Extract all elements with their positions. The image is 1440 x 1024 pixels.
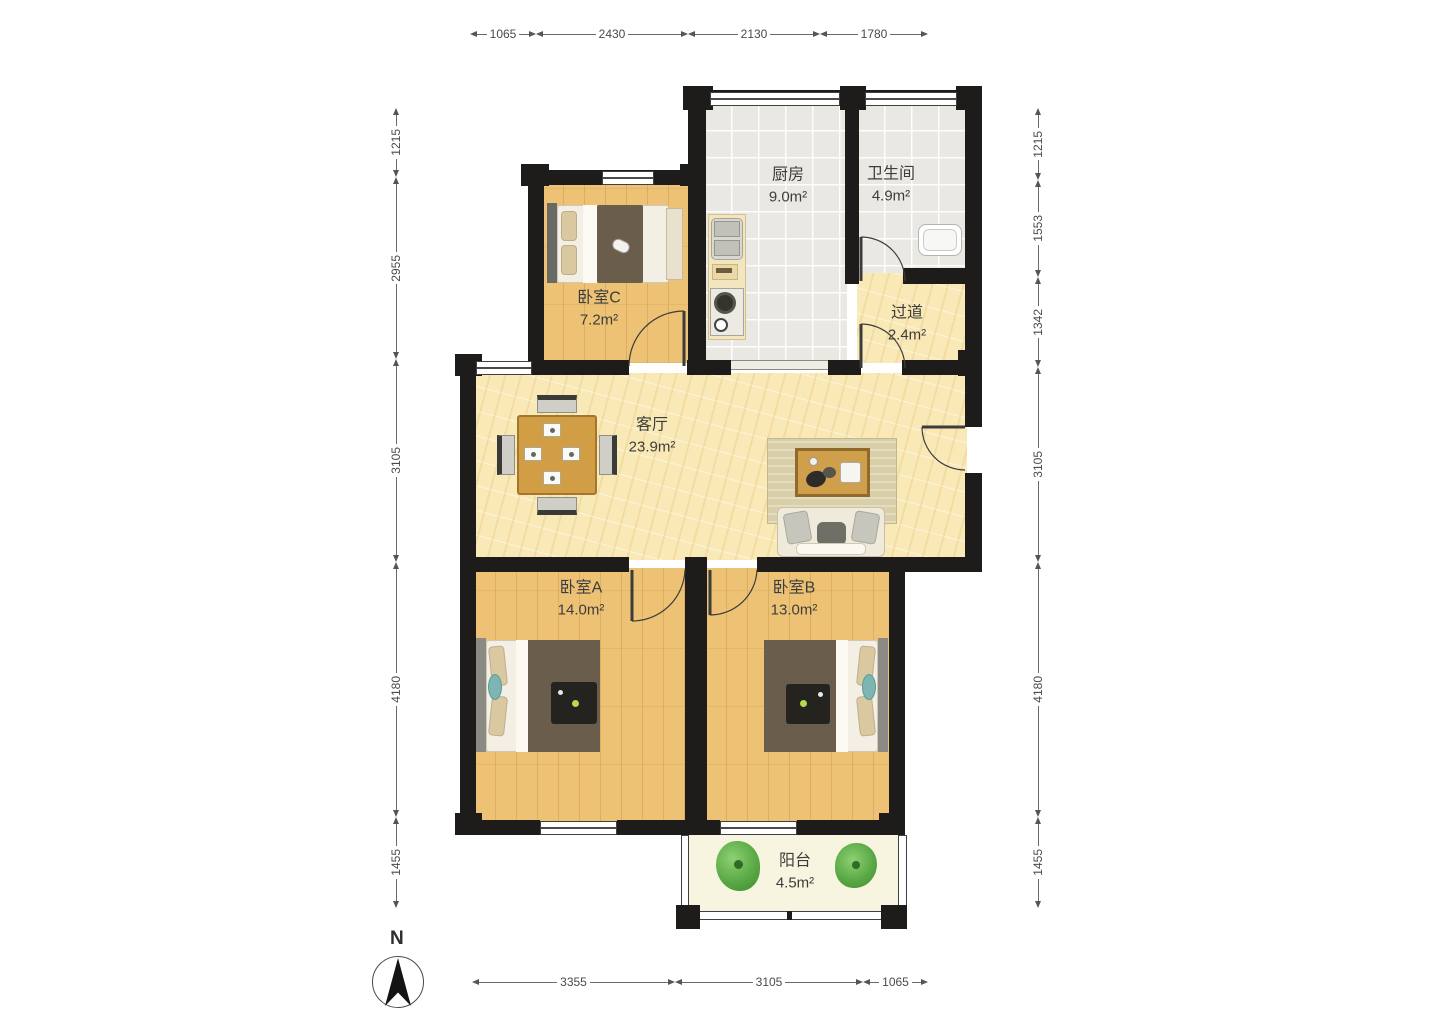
wall <box>685 557 707 835</box>
wall <box>828 360 861 375</box>
room-label-balcony: 阳台 4.5m² <box>776 850 814 895</box>
room-name: 厨房 <box>769 164 807 187</box>
wall-post <box>958 350 982 376</box>
room-name: 阳台 <box>776 850 814 873</box>
wall-post <box>680 164 706 186</box>
bed-a-tray-dot <box>572 700 579 707</box>
wall-post <box>956 86 982 110</box>
dim-value: 2430 <box>596 27 629 41</box>
wall <box>460 360 476 835</box>
coffee-table-stone <box>823 467 836 478</box>
dim-value: 1342 <box>1031 306 1045 339</box>
dim-value: 1215 <box>389 126 403 159</box>
bed-b-tray-dot <box>800 700 807 707</box>
dim-top-0: 1065 <box>470 27 536 41</box>
dim-value: 1065 <box>879 975 912 989</box>
bed-b-headboard <box>878 638 888 752</box>
bed-b-sheet-fold <box>836 640 848 752</box>
bathtub-inner <box>923 229 957 251</box>
room-label-kitchen: 厨房 9.0m² <box>769 164 807 209</box>
dim-value: 1780 <box>858 27 891 41</box>
kitchen-board-item <box>716 268 732 273</box>
bed-c-pillow <box>561 211 577 241</box>
room-area: 4.5m² <box>776 873 814 895</box>
balcony-rail-mullion <box>787 911 792 920</box>
dim-top-3: 1780 <box>820 27 928 41</box>
room-name: 卧室C <box>577 287 621 310</box>
dim-right-0: 1215 <box>1031 108 1045 180</box>
dim-bottom-1: 3105 <box>675 975 863 989</box>
bed-b-tray-speck <box>818 692 823 697</box>
wall <box>965 90 982 427</box>
dim-value: 3105 <box>753 975 786 989</box>
dim-value: 1215 <box>1031 128 1045 161</box>
bed-a-tray-speck <box>558 690 563 695</box>
wall <box>528 170 544 375</box>
room-label-bedroom-c: 卧室C 7.2m² <box>577 287 621 332</box>
wall <box>460 557 629 572</box>
room-name: 卫生间 <box>867 163 915 186</box>
sofa-seat-pillows <box>796 543 866 555</box>
dim-bottom-2: 1065 <box>863 975 928 989</box>
dim-bottom-0: 3355 <box>472 975 675 989</box>
wall-post <box>683 86 713 110</box>
dim-value: 4180 <box>1031 673 1045 706</box>
place-mat <box>562 447 580 461</box>
plant-center <box>852 861 860 869</box>
dim-value: 2955 <box>389 252 403 285</box>
kitchen-sink-basin <box>714 240 740 256</box>
wall-post <box>676 905 700 929</box>
room-name: 卧室B <box>771 577 818 600</box>
wall-post <box>881 905 907 929</box>
dim-right-5: 1455 <box>1031 817 1045 908</box>
room-area: 7.2m² <box>577 310 621 332</box>
dining-chair <box>537 497 577 515</box>
wall <box>688 90 706 375</box>
room-area: 14.0m² <box>558 600 605 622</box>
dim-left-2: 3105 <box>389 359 403 562</box>
bed-c-sheet-fold <box>583 205 597 283</box>
coffee-table-tray <box>840 462 861 483</box>
kitchen-opening-threshold <box>731 360 828 370</box>
wall-post <box>521 164 549 186</box>
bedroom-a-window <box>540 821 617 835</box>
wall <box>845 90 859 284</box>
dim-value: 3105 <box>389 444 403 477</box>
balcony-rail <box>681 835 689 915</box>
balcony-rail <box>681 911 907 920</box>
dining-chair <box>537 395 577 413</box>
dim-value: 4180 <box>389 673 403 706</box>
room-label-hallway: 过道 2.4m² <box>888 302 926 347</box>
room-label-living: 客厅 23.9m² <box>629 414 676 459</box>
wall-post <box>879 813 905 835</box>
wall-post <box>455 813 482 835</box>
bed-c-dresser <box>666 208 683 280</box>
room-label-bedroom-b: 卧室B 13.0m² <box>771 577 818 622</box>
kitchen-sink-basin <box>714 221 740 237</box>
room-name: 卧室A <box>558 577 605 600</box>
bed-b-teal-pillow <box>862 674 876 700</box>
room-area: 2.4m² <box>888 325 926 347</box>
bed-a-sheet-fold <box>516 640 528 752</box>
bed-a-headboard <box>476 638 486 752</box>
plant-center <box>734 860 743 869</box>
balcony-door-window <box>720 821 797 835</box>
dining-chair <box>497 435 515 475</box>
kitchen-kettle <box>714 318 728 332</box>
dim-value: 1455 <box>389 846 403 879</box>
wall-post <box>840 86 866 110</box>
room-name: 过道 <box>888 302 926 325</box>
bed-a-teal-pillow <box>488 674 502 700</box>
dim-top-1: 2430 <box>536 27 688 41</box>
dim-value: 3355 <box>557 975 590 989</box>
sofa-cushion <box>850 510 880 545</box>
wall <box>532 360 629 375</box>
room-name: 客厅 <box>629 414 676 437</box>
kitchen-window <box>710 92 840 106</box>
room-area: 4.9m² <box>867 186 915 208</box>
room-area: 23.9m² <box>629 437 676 459</box>
dim-right-3: 3105 <box>1031 367 1045 562</box>
dim-value: 1065 <box>487 27 520 41</box>
wall <box>965 473 982 572</box>
sofa-cushion <box>782 510 812 545</box>
dining-chair <box>599 435 617 475</box>
dim-left-0: 1215 <box>389 108 403 177</box>
room-label-bathroom: 卫生间 4.9m² <box>867 163 915 208</box>
kitchen-burner <box>714 292 736 314</box>
dim-left-1: 2955 <box>389 177 403 359</box>
sofa-ottoman <box>817 522 846 545</box>
living-room-window <box>476 361 532 375</box>
bedroom-c-window <box>602 171 654 185</box>
dim-value: 3105 <box>1031 448 1045 481</box>
room-area: 13.0m² <box>771 600 818 622</box>
dim-top-2: 2130 <box>688 27 820 41</box>
room-label-bedroom-a: 卧室A 14.0m² <box>558 577 605 622</box>
dim-right-1: 1553 <box>1031 180 1045 277</box>
dim-value: 1455 <box>1031 846 1045 879</box>
bed-c-pillow <box>561 245 577 275</box>
place-mat <box>524 447 542 461</box>
room-area: 9.0m² <box>769 187 807 209</box>
dim-value: 1553 <box>1031 212 1045 245</box>
dim-value: 2130 <box>738 27 771 41</box>
bed-b-tray <box>786 684 830 724</box>
floor-plan: 厨房 9.0m² 卫生间 4.9m² 卧室C 7.2m² 过道 2.4m² 客厅… <box>0 0 1440 1024</box>
dim-left-3: 4180 <box>389 562 403 817</box>
dim-right-4: 4180 <box>1031 562 1045 817</box>
dim-right-2: 1342 <box>1031 277 1045 367</box>
coffee-table-vase <box>809 457 818 466</box>
bed-c-headboard <box>547 203 557 283</box>
wall <box>889 557 905 835</box>
dim-left-4: 1455 <box>389 817 403 908</box>
wall <box>757 557 982 572</box>
place-mat <box>543 471 561 485</box>
compass-north-label: N <box>390 928 404 950</box>
place-mat <box>543 423 561 437</box>
bathroom-window <box>865 92 957 106</box>
